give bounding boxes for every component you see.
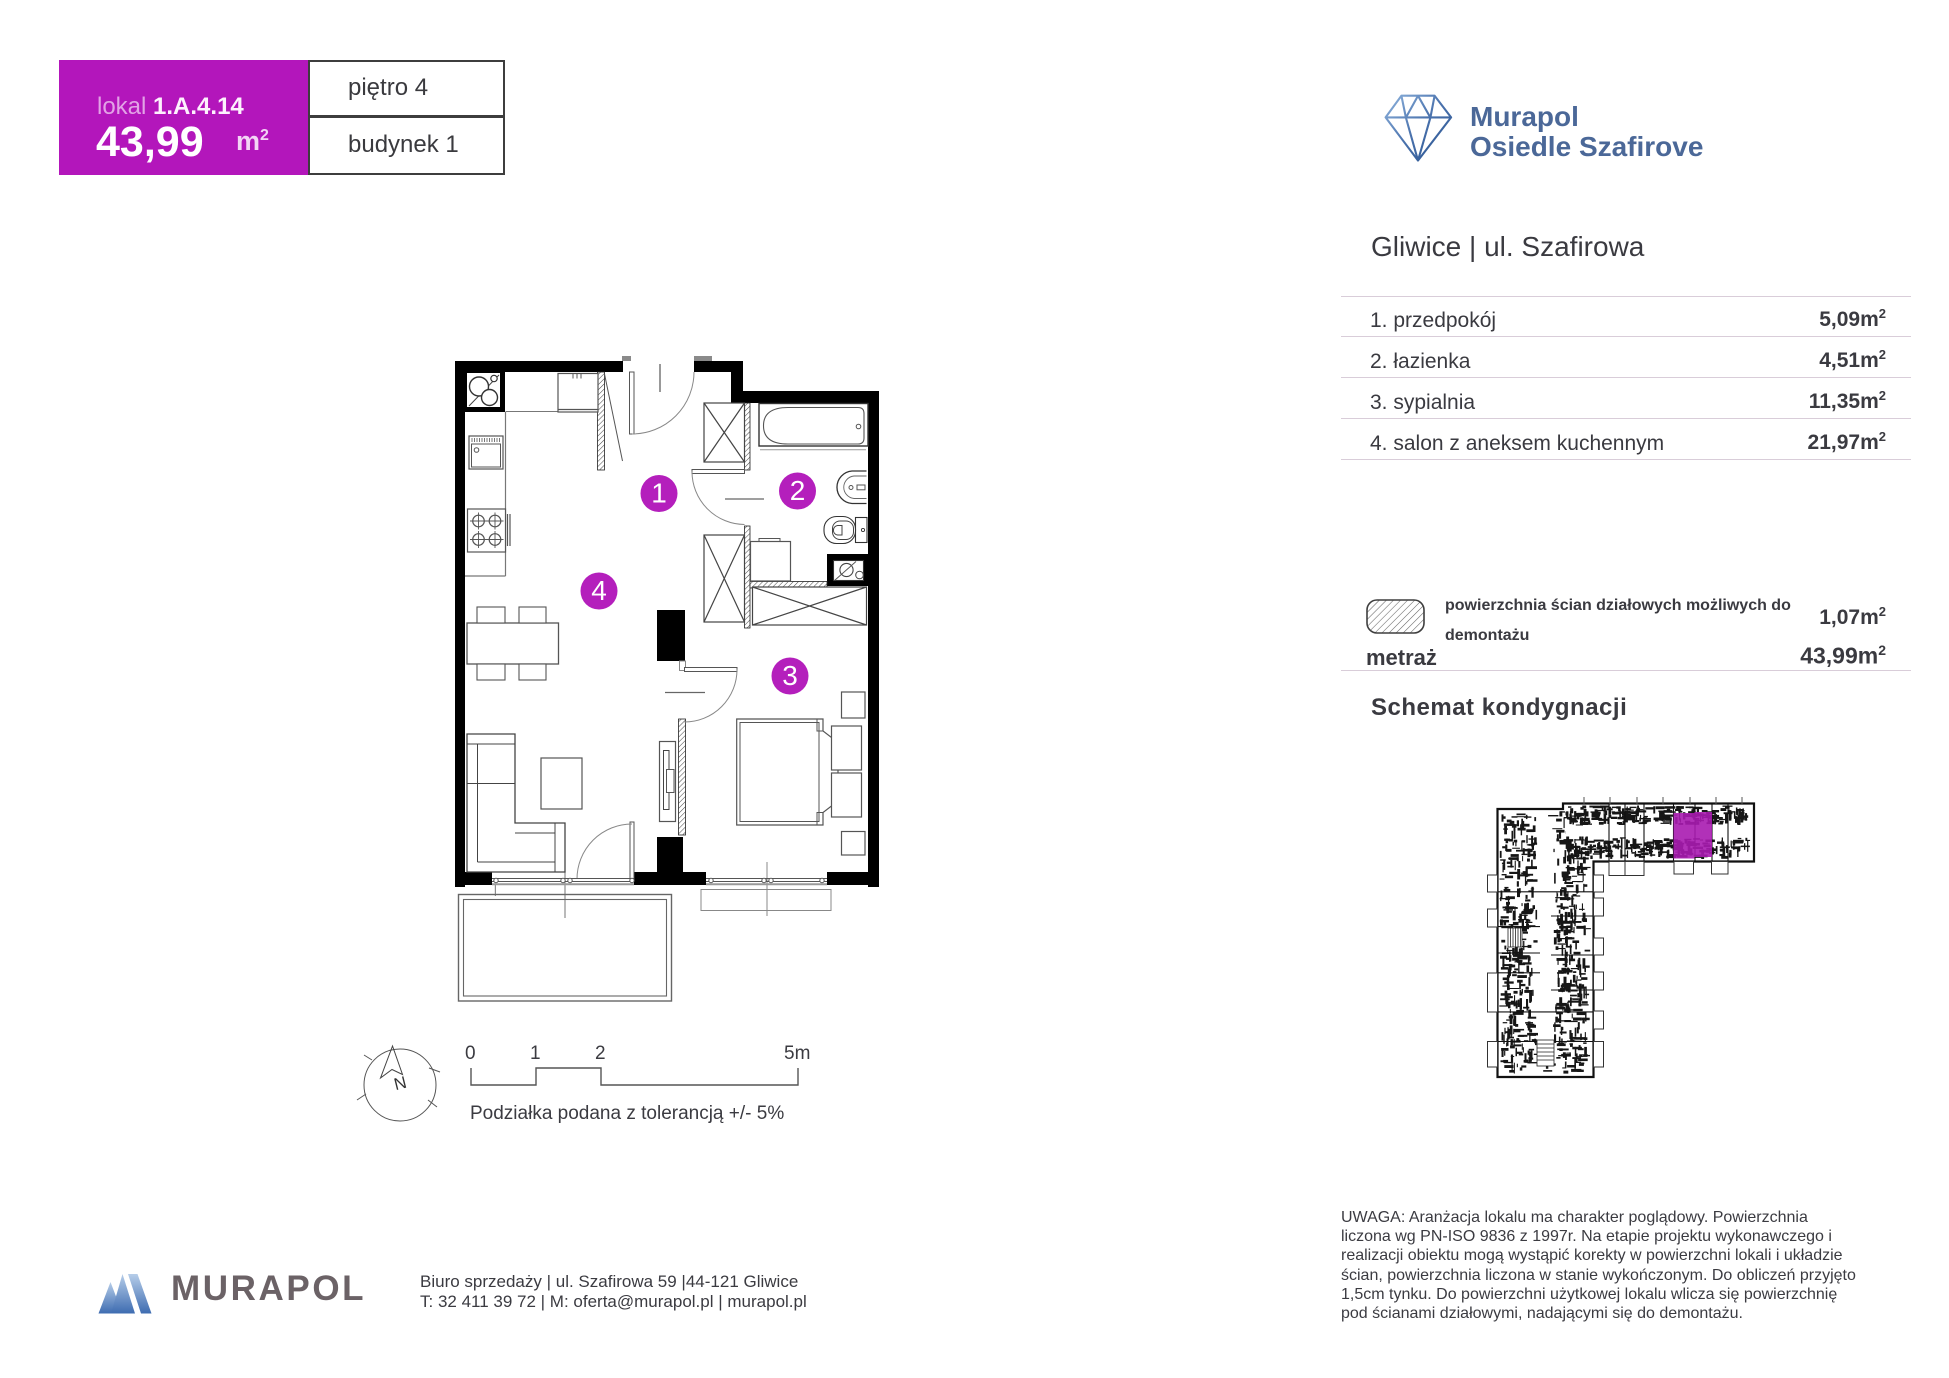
svg-text:N: N xyxy=(392,1073,409,1094)
svg-text:5m: 5m xyxy=(784,1043,810,1064)
svg-text:2: 2 xyxy=(595,1043,606,1064)
svg-text:2: 2 xyxy=(790,475,806,506)
svg-text:1: 1 xyxy=(651,478,667,509)
svg-text:1: 1 xyxy=(530,1043,541,1064)
svg-text:3: 3 xyxy=(782,660,798,691)
svg-text:0: 0 xyxy=(465,1043,476,1064)
svg-text:4: 4 xyxy=(591,575,607,606)
